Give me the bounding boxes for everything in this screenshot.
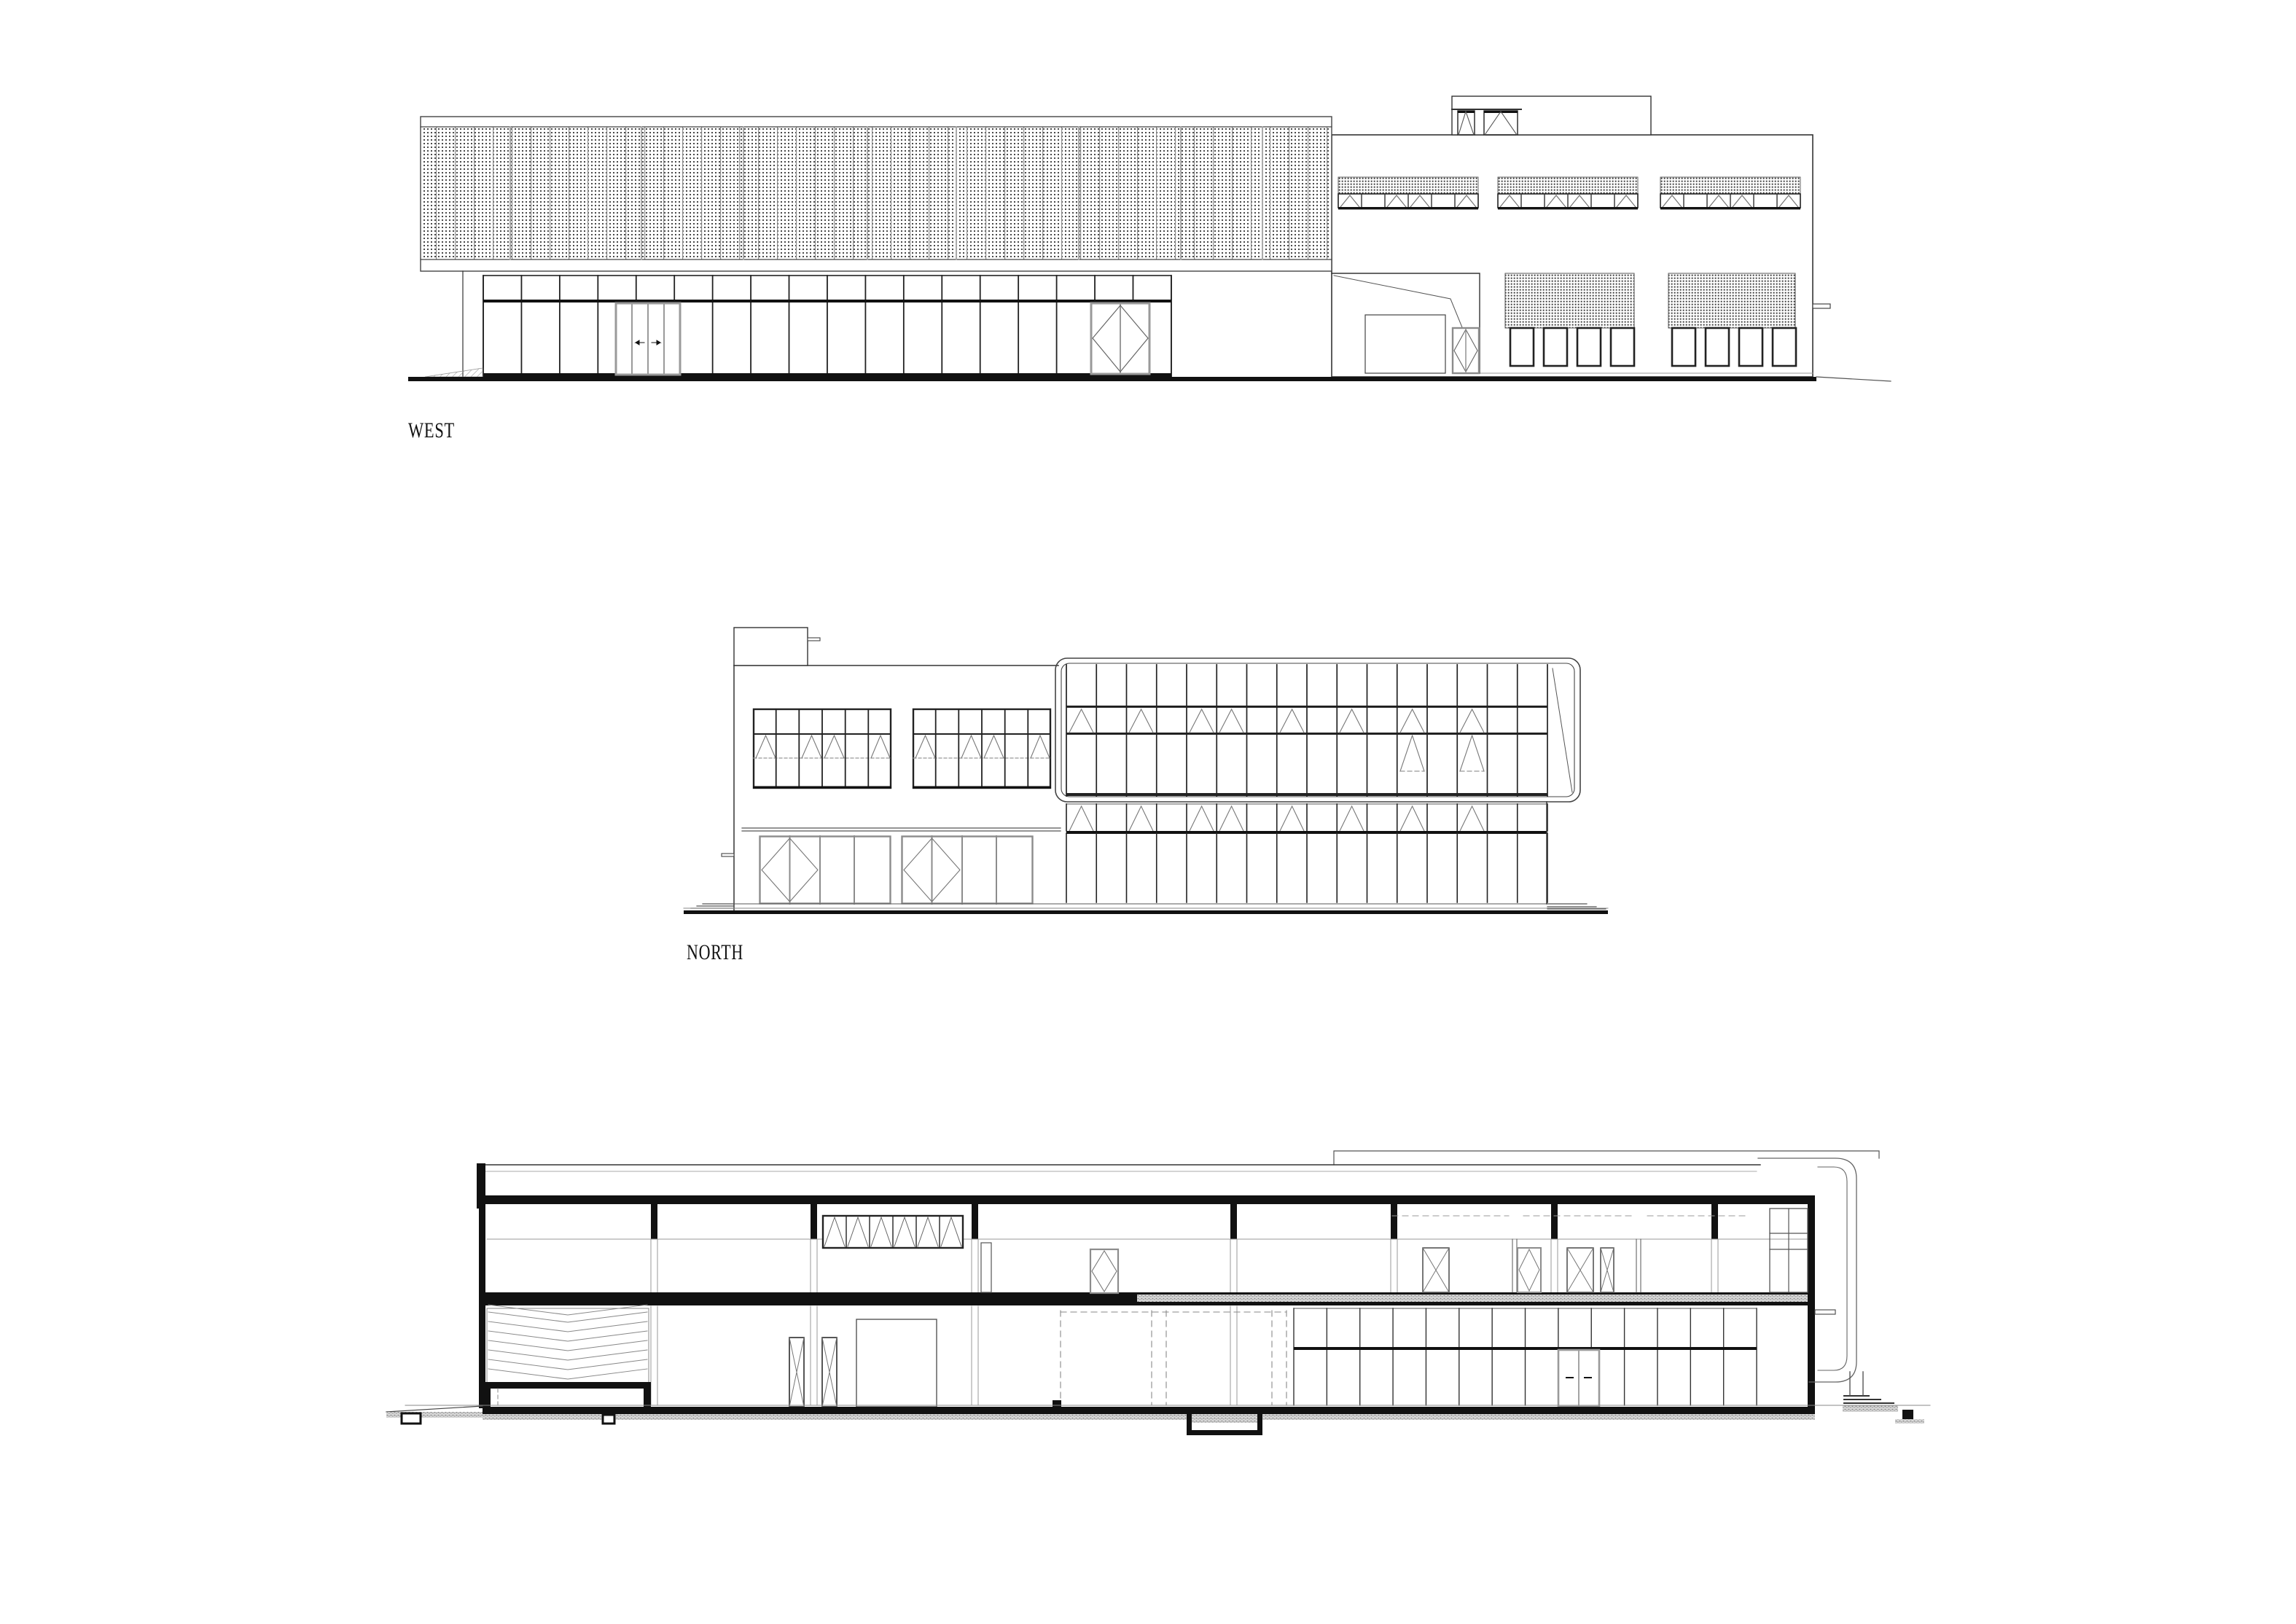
section-clerestory	[823, 1216, 963, 1248]
section-wall-pipe	[1815, 1310, 1835, 1314]
section-pit	[1187, 1413, 1262, 1435]
north-roof-pipe	[808, 638, 820, 641]
west-wall-pipe	[1813, 304, 1830, 308]
west-label: WEST	[408, 418, 455, 442]
section-lower-middle	[789, 1311, 1286, 1407]
west-entry-door	[616, 303, 680, 375]
north-label: NORTH	[687, 940, 743, 964]
north-window-group	[913, 709, 1051, 789]
north-folding-door	[902, 836, 1033, 904]
west-roof-box	[1452, 96, 1651, 135]
north-wall-pipe	[722, 854, 734, 856]
north-folding-door	[760, 836, 891, 904]
section-shaft-dashed	[1061, 1311, 1286, 1405]
west-storefront	[463, 271, 1171, 377]
north-window-group	[753, 709, 891, 789]
west-right-wing	[1332, 96, 1830, 377]
blueprint-canvas: WEST	[0, 0, 2296, 1624]
building-section	[386, 1151, 1930, 1435]
north-canopy	[742, 828, 1061, 831]
drawing-sheet: WEST	[0, 0, 2296, 1624]
west-screen-panel	[421, 117, 1332, 271]
west-window-band	[1338, 177, 1478, 209]
north-left-body	[722, 628, 1547, 911]
north-lower-glazing	[1066, 802, 1547, 904]
north-curtain-frame	[1055, 658, 1580, 802]
section-steps	[1816, 1372, 1930, 1424]
north-ground-line	[684, 904, 1608, 914]
west-window-band	[1660, 177, 1800, 209]
section-structure	[479, 1204, 1815, 1408]
west-diamond-door	[1091, 303, 1149, 374]
north-elevation: NORTH	[684, 628, 1608, 964]
west-elevation: WEST	[408, 96, 1891, 442]
section-diamond-door	[1090, 1249, 1118, 1293]
section-roof	[477, 1151, 1879, 1209]
north-roof-box	[734, 628, 808, 665]
west-window-band	[1498, 177, 1638, 209]
section-curtain-wall	[1294, 1308, 1757, 1407]
section-ground	[386, 1372, 1930, 1435]
section-chevron-panel	[483, 1305, 651, 1407]
